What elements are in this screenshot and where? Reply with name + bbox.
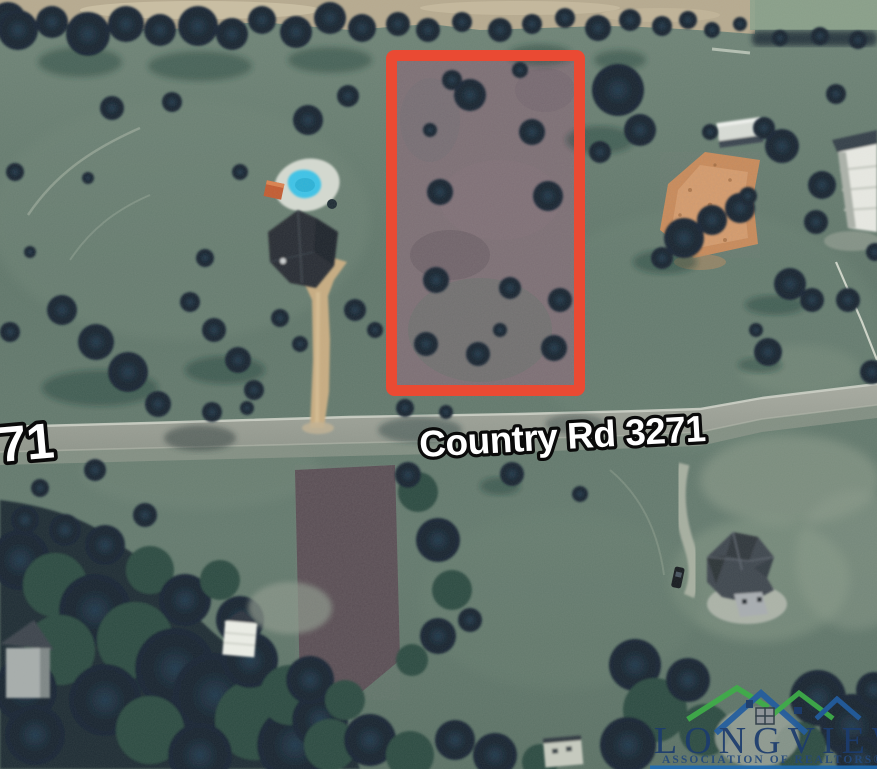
- logo-subtitle: ASSOCIATION OF REALTORS®: [662, 754, 877, 766]
- logo-underline: [650, 766, 877, 769]
- photo-grain: [0, 0, 877, 769]
- road-label-partial: 71: [0, 412, 56, 473]
- satellite-photo: Country Rd 3271 71 LONGVIEW ASSOCIATION …: [0, 0, 877, 769]
- map-canvas: Country Rd 3271 71 LONGVIEW ASSOCIATION …: [0, 0, 877, 769]
